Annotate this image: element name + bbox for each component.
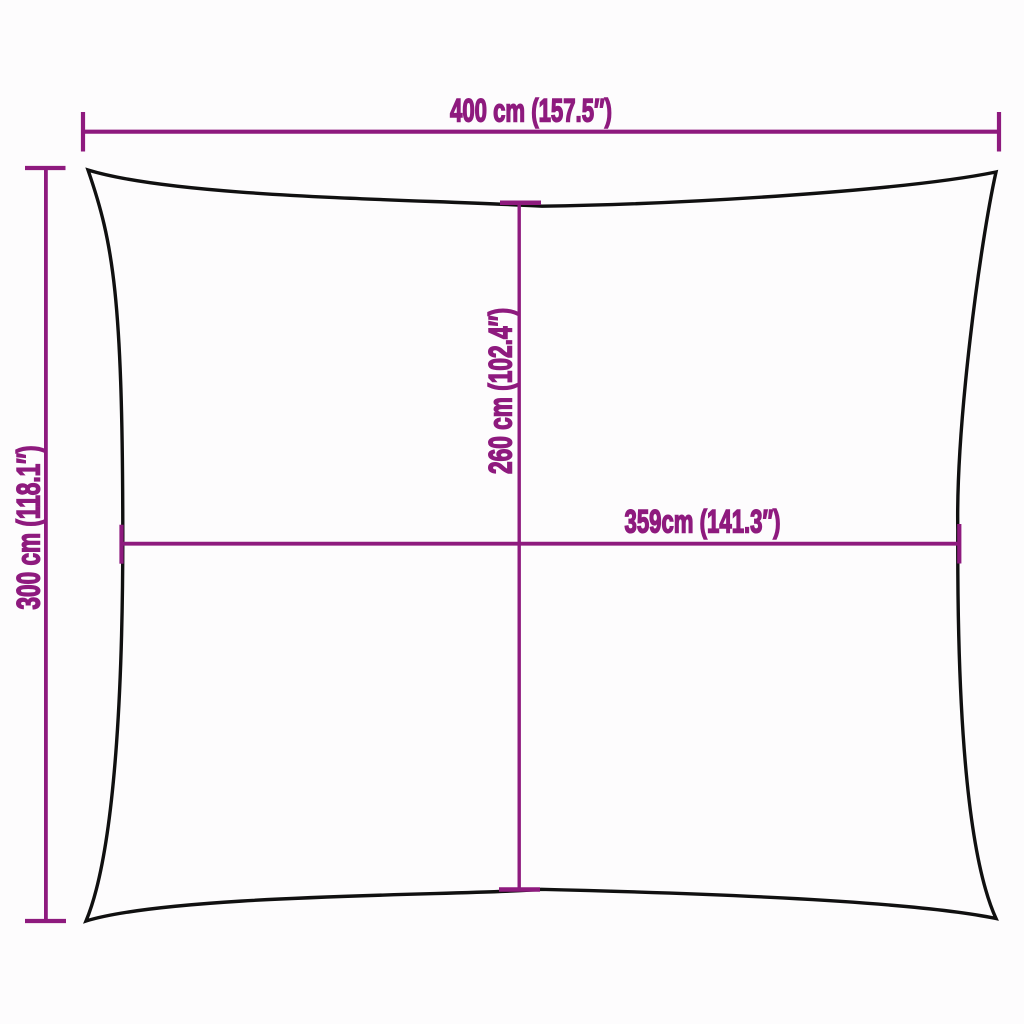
svg-text:400 cm (157.5″): 400 cm (157.5″) [450, 93, 612, 129]
svg-text:300 cm (118.1″): 300 cm (118.1″) [11, 446, 47, 610]
svg-text:359cm (141.3″): 359cm (141.3″) [625, 504, 781, 540]
svg-text:260 cm (102.4″): 260 cm (102.4″) [483, 308, 519, 474]
